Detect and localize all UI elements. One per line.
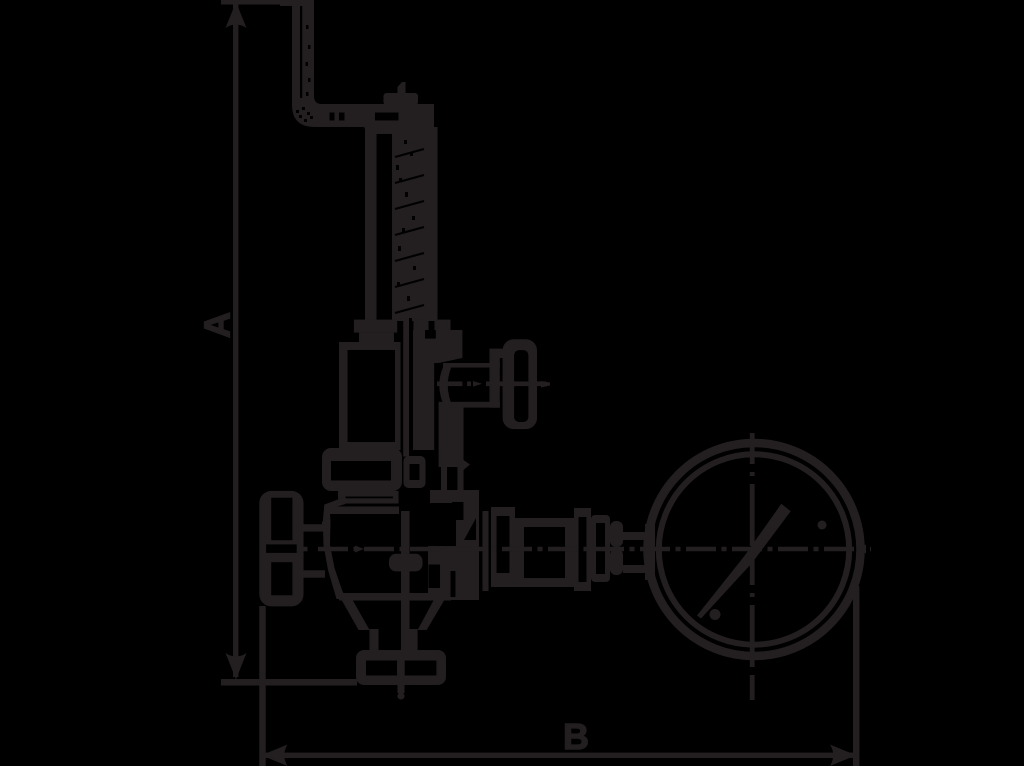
svg-text:B: B	[563, 716, 589, 757]
svg-text:A: A	[197, 312, 238, 338]
